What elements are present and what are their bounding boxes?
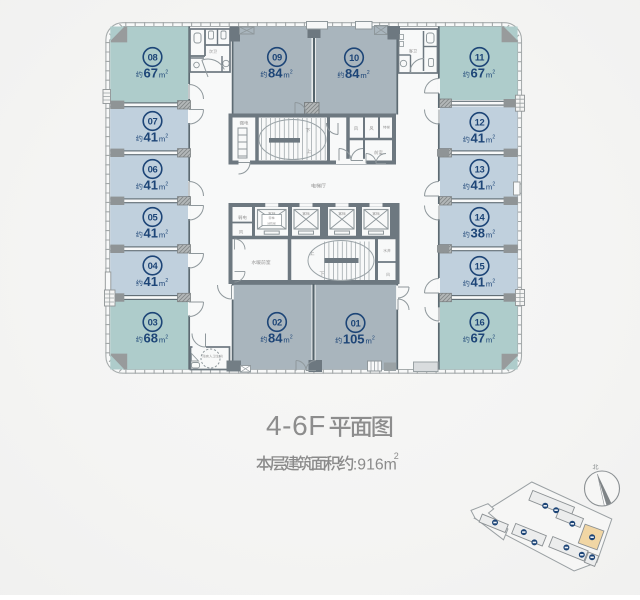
svg-text:2: 2 <box>492 230 495 236</box>
svg-text:2: 2 <box>165 70 168 76</box>
svg-text:41: 41 <box>144 130 158 145</box>
svg-text:41: 41 <box>471 178 485 193</box>
svg-text:m: m <box>159 183 165 192</box>
svg-text:m: m <box>486 71 492 80</box>
svg-text:m: m <box>159 231 165 240</box>
svg-text:84: 84 <box>345 66 360 81</box>
svg-text:m: m <box>360 71 366 80</box>
svg-text:09: 09 <box>272 52 282 63</box>
svg-text:06: 06 <box>148 164 158 175</box>
svg-text:2: 2 <box>165 182 168 188</box>
svg-text:41: 41 <box>471 275 485 290</box>
svg-text:11: 11 <box>475 52 484 63</box>
svg-text:2: 2 <box>165 230 168 236</box>
svg-text:m: m <box>159 135 165 144</box>
svg-text:84: 84 <box>268 331 283 346</box>
svg-text:m: m <box>486 136 492 145</box>
svg-text:13: 13 <box>475 164 485 175</box>
svg-text:105: 105 <box>343 332 365 347</box>
svg-text:2: 2 <box>492 135 495 141</box>
svg-text:2: 2 <box>165 335 168 341</box>
svg-text:2: 2 <box>492 182 495 188</box>
svg-text:05: 05 <box>148 212 158 223</box>
svg-text:m: m <box>486 231 492 240</box>
svg-text:08: 08 <box>148 52 158 63</box>
svg-text:84: 84 <box>268 66 283 81</box>
svg-text:2: 2 <box>492 335 495 341</box>
svg-text:2: 2 <box>492 279 495 285</box>
svg-text:41: 41 <box>144 274 158 289</box>
svg-text:41: 41 <box>144 226 158 241</box>
svg-text:38: 38 <box>471 226 485 241</box>
svg-text:2: 2 <box>367 70 370 76</box>
svg-text:67: 67 <box>471 66 485 81</box>
svg-text::916m: :916m <box>353 456 397 473</box>
svg-text:02: 02 <box>272 317 282 328</box>
svg-text:67: 67 <box>471 331 485 346</box>
svg-text:m: m <box>283 336 289 345</box>
svg-text:01: 01 <box>351 318 361 329</box>
svg-text:m: m <box>486 280 492 289</box>
svg-text:15: 15 <box>475 261 485 272</box>
svg-text:10: 10 <box>349 52 359 63</box>
svg-text:m: m <box>486 336 492 345</box>
svg-text:2: 2 <box>372 336 375 342</box>
svg-text:41: 41 <box>144 178 158 193</box>
svg-text:68: 68 <box>144 331 158 346</box>
svg-text:2: 2 <box>492 70 495 76</box>
svg-text:2: 2 <box>165 134 168 140</box>
svg-text:07: 07 <box>148 116 158 127</box>
svg-text:2: 2 <box>290 70 293 76</box>
svg-text:2: 2 <box>290 335 293 341</box>
svg-text:16: 16 <box>475 317 485 328</box>
svg-text:m: m <box>159 336 165 345</box>
svg-text:2: 2 <box>394 451 399 461</box>
svg-text:67: 67 <box>144 66 158 81</box>
svg-text:4-6F: 4-6F <box>266 410 326 441</box>
svg-text:m: m <box>366 337 372 346</box>
svg-text:12: 12 <box>475 117 485 128</box>
svg-text:04: 04 <box>148 260 159 271</box>
svg-text:m: m <box>159 71 165 80</box>
svg-text:m: m <box>283 71 289 80</box>
svg-text:2: 2 <box>165 278 168 284</box>
svg-text:m: m <box>486 183 492 192</box>
svg-text:41: 41 <box>471 131 485 146</box>
svg-text:03: 03 <box>148 317 158 328</box>
svg-text:14: 14 <box>475 212 486 223</box>
svg-text:m: m <box>159 279 165 288</box>
